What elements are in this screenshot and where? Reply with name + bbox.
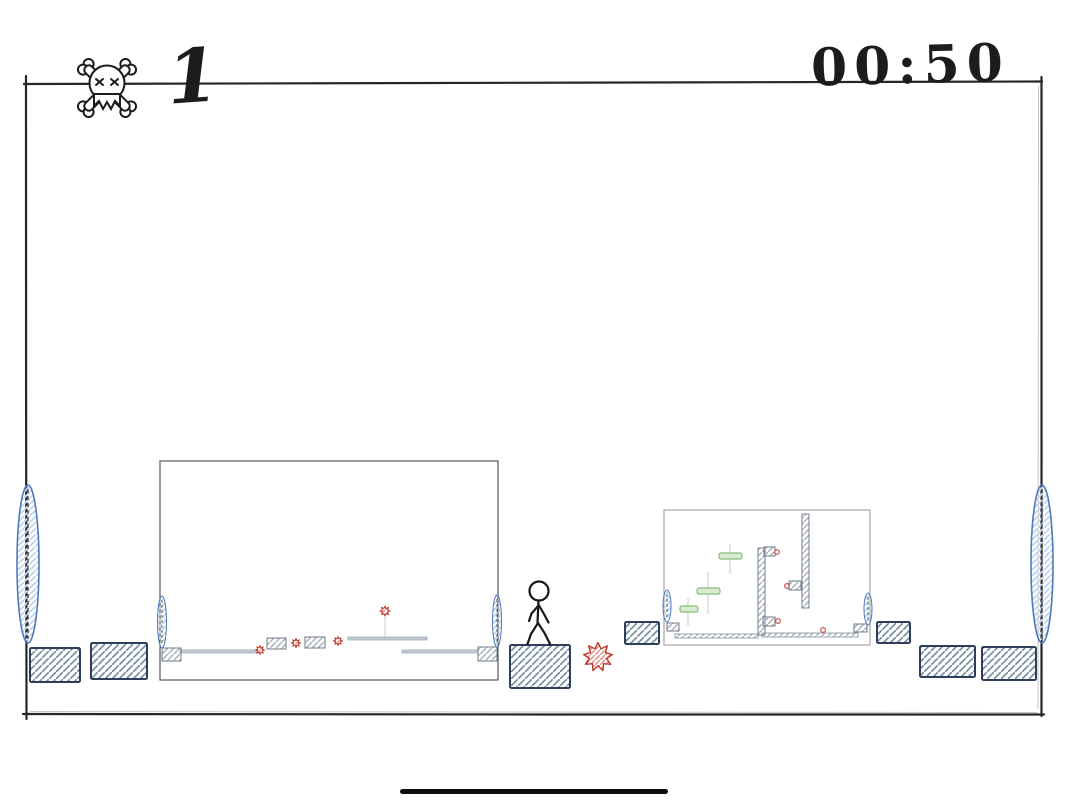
mini-platform <box>180 650 257 653</box>
game-world[interactable] <box>0 0 1068 800</box>
mini-spike <box>256 646 265 655</box>
portal-left <box>17 485 39 643</box>
mini-green-platform <box>719 553 742 559</box>
mini-spike <box>380 606 390 616</box>
mini-block <box>763 617 775 626</box>
mini-spike <box>292 639 301 648</box>
hatched-block <box>877 622 910 643</box>
hatched-block <box>91 643 147 679</box>
hatched-block <box>920 646 975 677</box>
mini-floor <box>675 634 758 638</box>
mini-green-platform <box>697 588 720 594</box>
mini-portal <box>663 590 671 622</box>
bottom-bar <box>400 789 668 794</box>
spike-ball <box>584 643 613 671</box>
mini-spike <box>334 637 343 646</box>
mini-wall <box>802 514 809 608</box>
level-preview-window <box>663 510 872 645</box>
hatched-block <box>30 648 80 682</box>
mini-block <box>854 624 867 632</box>
level-preview-window <box>158 461 502 680</box>
timer: 00:50 <box>810 37 1010 94</box>
mini-platform <box>348 637 427 640</box>
mini-platform <box>402 650 478 653</box>
skull-crossbones-icon <box>70 46 144 128</box>
game-stage: 1 00:50 <box>0 0 1068 800</box>
hatched-block <box>510 645 570 688</box>
mini-block <box>764 547 775 556</box>
mini-floor <box>762 633 858 637</box>
mini-block <box>667 623 679 631</box>
mini-block <box>267 638 286 649</box>
mini-block <box>478 647 497 661</box>
mini-block <box>789 581 801 590</box>
mini-portal <box>493 595 502 647</box>
mini-block <box>305 637 325 648</box>
mini-portal <box>158 596 167 648</box>
portal-right <box>1031 485 1053 643</box>
player-stick-figure <box>528 582 551 645</box>
mini-green-platform <box>680 606 698 612</box>
mini-portal <box>864 593 872 625</box>
mini-block <box>162 648 181 661</box>
hatched-block <box>982 647 1036 680</box>
death-count: 1 <box>164 38 221 115</box>
hatched-block <box>625 622 659 644</box>
